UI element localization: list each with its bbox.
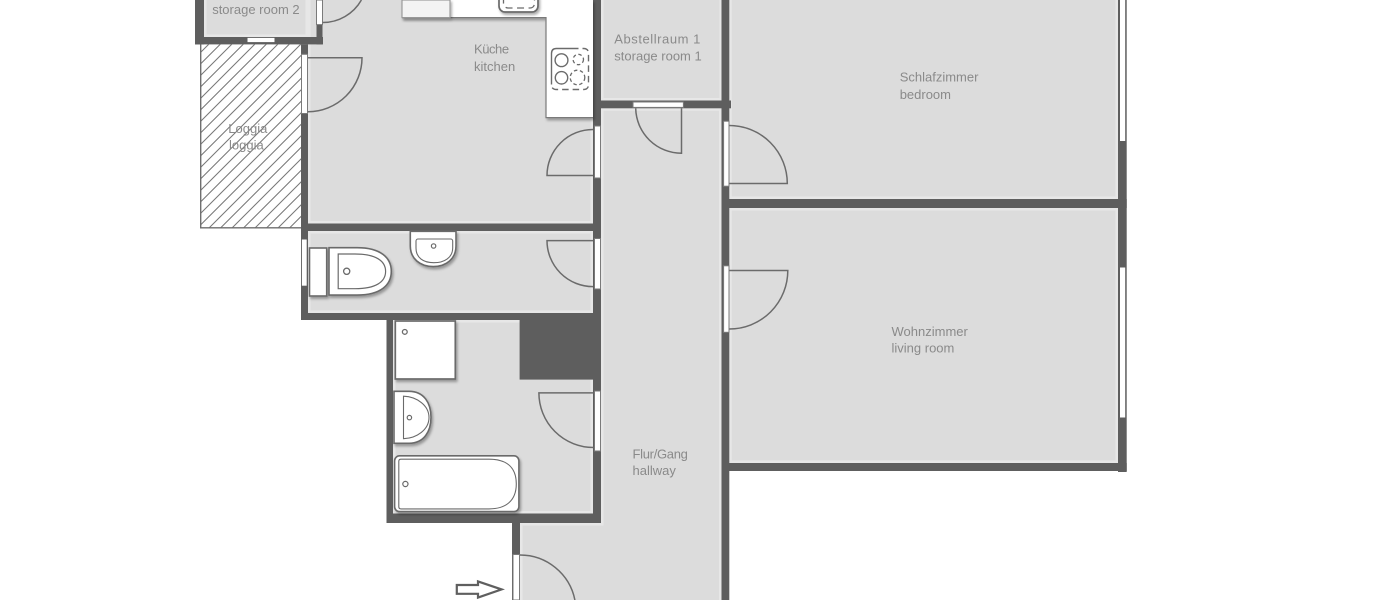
svg-text:Küche: Küche: [474, 41, 509, 56]
svg-text:storage room 1: storage room 1: [614, 49, 701, 64]
svg-text:kitchen: kitchen: [474, 59, 515, 74]
svg-text:Flur/Gang: Flur/Gang: [633, 447, 688, 462]
svg-text:loggia: loggia: [229, 138, 264, 153]
svg-text:bedroom: bedroom: [900, 87, 951, 102]
svg-text:Wohnzimmer: Wohnzimmer: [892, 324, 969, 339]
svg-text:living room: living room: [892, 341, 955, 356]
svg-text:storage room 2: storage room 2: [212, 2, 299, 17]
svg-text:Abstellraum 1: Abstellraum 1: [614, 32, 701, 47]
svg-text:hallway: hallway: [633, 463, 677, 478]
svg-text:Schlafzimmer: Schlafzimmer: [900, 70, 979, 85]
svg-text:Loggia: Loggia: [228, 121, 268, 136]
